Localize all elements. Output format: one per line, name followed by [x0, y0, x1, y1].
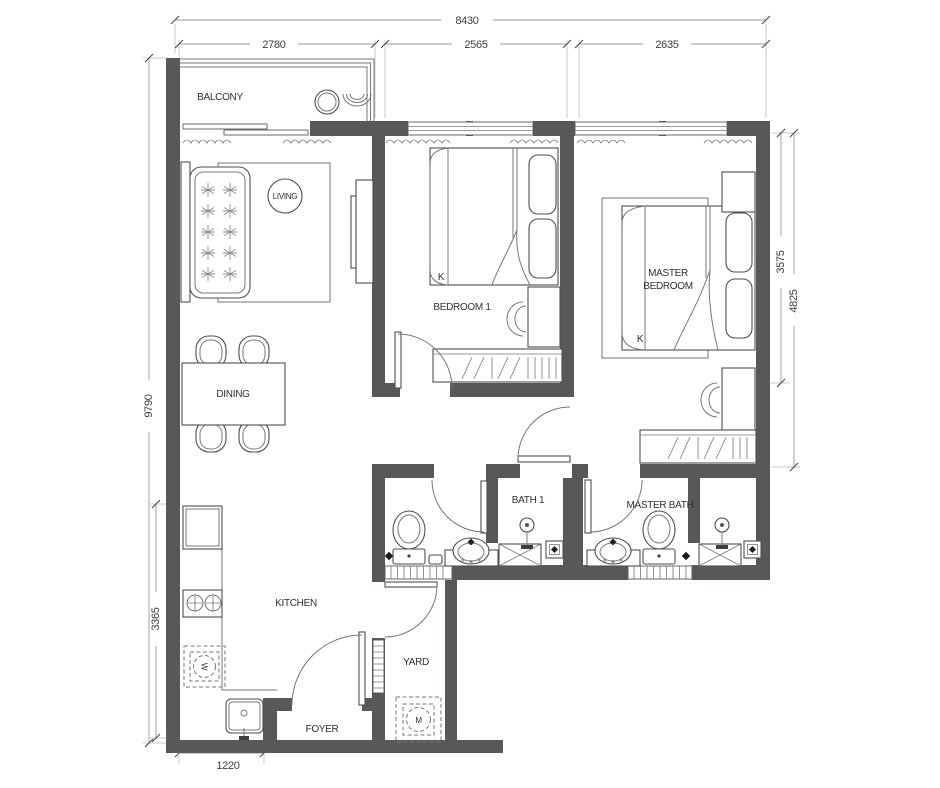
- dim-master-depth-value: 3575: [775, 250, 787, 273]
- dim-master-width: 2635: [575, 39, 770, 51]
- bath1: BATH 1: [385, 495, 563, 566]
- master-wardrobe: [640, 430, 756, 463]
- master-bedroom-window: [575, 122, 727, 135]
- master-bedroom-label-line2: BEDROOM: [643, 281, 693, 292]
- kitchen-counter: [222, 506, 277, 690]
- dim-balcony-width-value: 2780: [262, 39, 285, 51]
- kitchen-sink: [226, 699, 263, 740]
- floor-plan-drawing: 8430 2780 2565 2635 9790 3365: [0, 0, 940, 788]
- balcony-table: [315, 90, 339, 114]
- bedroom1: K BEDROOM 1: [430, 148, 562, 382]
- master-bedroom: K MASTER BEDROOM: [602, 172, 756, 463]
- living-label-circle: LIVING: [268, 179, 302, 213]
- living-room: LIVING: [181, 162, 373, 302]
- master-nightstand: [722, 172, 755, 212]
- foyer-label: FOYER: [306, 724, 339, 735]
- dining-area: DINING: [182, 336, 285, 452]
- yard: M YARD: [396, 657, 441, 742]
- master-bed-size: K: [637, 334, 644, 345]
- balcony-label: BALCONY: [197, 92, 243, 103]
- bath1-louvre-window: [385, 566, 452, 579]
- bedroom1-window: [408, 122, 533, 135]
- stove: [183, 590, 222, 617]
- dim-master-width-value: 2635: [655, 39, 678, 51]
- kitchen: W KITCHEN: [183, 506, 317, 740]
- bath1-flush: [385, 552, 393, 560]
- master-bath: MASTER BATH: [587, 500, 761, 566]
- master-desk: [701, 368, 755, 430]
- dim-master-overall-depth: 4825: [788, 129, 800, 471]
- bath1-label: BATH 1: [512, 495, 545, 506]
- fridge: [183, 506, 222, 549]
- dim-kitchen-depth-value: 3365: [150, 607, 162, 630]
- dim-master-overall-depth-value: 4825: [788, 289, 800, 312]
- bedroom1-desk: [507, 287, 560, 347]
- yard-door: [385, 582, 437, 637]
- balcony: [180, 59, 374, 121]
- yard-label: YARD: [403, 657, 429, 668]
- bedroom1-label: BEDROOM 1: [433, 302, 491, 313]
- yard-louvre-window: [373, 640, 384, 693]
- bedroom1-wardrobe: [433, 349, 562, 382]
- master-bed: K: [622, 206, 755, 350]
- dim-kitchen-depth: 3365: [150, 500, 162, 742]
- bath1-door: [432, 480, 487, 533]
- master-bedroom-label-line1: MASTER: [648, 268, 688, 279]
- bath1-accessory: [429, 555, 442, 564]
- master-bath-flush: [682, 552, 690, 560]
- curtains: [183, 140, 752, 143]
- balcony-sliding-door: [180, 121, 310, 136]
- washing-machine: W: [184, 646, 225, 687]
- dim-master-depth: 3575: [775, 129, 787, 387]
- bedroom1-bed: K: [430, 148, 558, 285]
- master-bath-louvre-window: [628, 566, 692, 579]
- tv-console: [351, 180, 373, 283]
- floor-plan: 8430 2780 2565 2635 9790 3365: [0, 0, 940, 788]
- dim-total-depth-value: 9790: [143, 394, 155, 417]
- dim-bedroom1-width: 2565: [381, 39, 571, 51]
- sofa: [181, 162, 250, 302]
- master-bedroom-door: [518, 407, 570, 462]
- yard-machine: M: [396, 697, 441, 742]
- dim-entry-width-value: 1220: [216, 760, 239, 772]
- dim-total-depth: 9790: [143, 54, 155, 747]
- entrance-door: [292, 632, 365, 705]
- master-bath-label: MASTER BATH: [626, 500, 693, 511]
- dim-balcony-width: 2780: [175, 39, 379, 51]
- washer-label: W: [200, 663, 209, 671]
- dim-total-width: 8430: [171, 15, 770, 27]
- dim-bedroom1-width-value: 2565: [464, 39, 487, 51]
- yard-machine-label: M: [415, 716, 422, 725]
- living-label: LIVING: [273, 192, 298, 201]
- kitchen-label: KITCHEN: [275, 598, 317, 609]
- dim-total-width-value: 8430: [455, 15, 478, 27]
- dining-label: DINING: [216, 389, 250, 400]
- bedroom1-bed-size: K: [438, 272, 445, 283]
